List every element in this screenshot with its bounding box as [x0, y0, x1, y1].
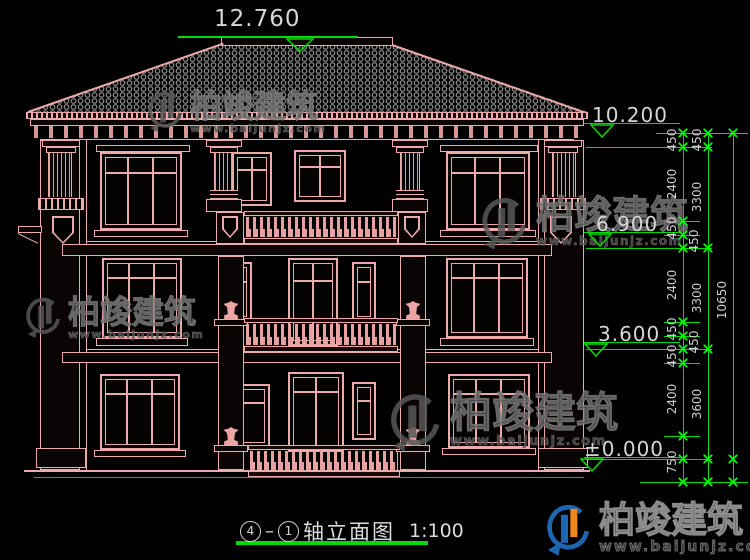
column-shaft-right: [400, 153, 420, 190]
pier-dentil-cap-left: [38, 198, 84, 210]
ground-subline: [34, 477, 584, 478]
wall-edge-left: [86, 140, 87, 470]
column-shield-right: [404, 216, 420, 238]
window-2f-right: [446, 258, 528, 338]
brand-name: 柏竣建筑: [599, 503, 750, 539]
dim-tick: [679, 432, 688, 441]
title-scale: 1:100: [409, 520, 464, 542]
axis-dash: –: [265, 521, 274, 542]
dim-tick: [704, 478, 713, 487]
dim-value-label: 450: [687, 331, 701, 354]
brand-footer: 柏竣建筑 www.baijunjz.com: [544, 503, 750, 557]
dim-tick: [704, 345, 713, 354]
dim-tick: [679, 143, 688, 152]
dim-value-label: 3600: [690, 389, 704, 420]
sill-1f-right: [442, 448, 536, 455]
ridge-elevation-text: 12.760: [214, 6, 300, 32]
dim-value-label: 450: [665, 345, 679, 368]
dim-tick: [704, 244, 713, 253]
door-1f-center: [288, 372, 344, 452]
dim-chain-line: [708, 133, 709, 482]
window-2f-center-right: [352, 262, 376, 322]
elevation-marker-text: ±0.000: [584, 437, 664, 461]
column-capital-right: [392, 140, 428, 147]
brand-url: www.baijunjz.com: [599, 539, 750, 555]
pilaster-cap-right: [544, 140, 582, 147]
pedestal-cap-2f-left: [214, 319, 248, 326]
dim-value-label: 450: [665, 318, 679, 341]
window-3f-center-left: [232, 152, 272, 206]
elevation-marker-text: 6.900: [596, 212, 658, 236]
dim-tick: [729, 129, 738, 138]
dim-value-label: 3300: [690, 182, 704, 213]
elevation-marker-text: 10.200: [592, 103, 668, 127]
window-1f-left: [100, 374, 180, 450]
window-2f-left: [102, 258, 182, 338]
sill-2f-left: [96, 338, 188, 346]
pier-shield-left: [52, 216, 74, 244]
dim-value-label: 450: [690, 129, 704, 152]
left-bracket: [18, 226, 42, 233]
dim-value-label: 10650: [715, 281, 729, 319]
cad-canvas: 柏竣建筑 www.baijunjz.com 柏竣建筑 www.baijunjz.…: [0, 0, 750, 560]
column-pedcap-left: [206, 199, 242, 212]
brand-logo-icon: [544, 503, 592, 557]
sill-1f-left: [94, 450, 186, 457]
win-head-trim-3f-left: [96, 145, 190, 152]
building-elevation: [0, 0, 750, 560]
win-head-trim-3f-right: [440, 145, 538, 152]
title-name: 轴立面图: [303, 516, 395, 546]
dim-tick: [704, 129, 713, 138]
axis-bubble-start: 4: [240, 521, 261, 542]
dim-value-label: 450: [687, 230, 701, 253]
roof-tiles: [28, 44, 588, 112]
slab-3f: [62, 244, 552, 256]
eave-fascia: [30, 119, 584, 126]
eave-underline: [40, 139, 574, 140]
elevation-marker-text: 3.600: [598, 322, 660, 346]
column-shield-left: [222, 216, 238, 238]
eave-brackets: [34, 126, 580, 138]
window-3f-center-right: [294, 150, 346, 202]
balustrade-2f: [244, 318, 398, 352]
dim-tick: [679, 217, 688, 226]
dim-value-label: 2400: [665, 384, 679, 415]
dim-value-label: 2400: [665, 270, 679, 301]
pilaster-shaft-left: [48, 153, 72, 197]
dim-chain-line: [683, 133, 684, 482]
column-rings-right: [396, 190, 424, 199]
sill-2f-right: [440, 338, 534, 346]
window-1f-center-right: [352, 382, 376, 440]
dim-tick: [679, 359, 688, 368]
column-capital-left: [206, 140, 242, 147]
drawing-title: 4 – 1 轴立面图 1:100: [240, 516, 464, 546]
balustrade-1f: [248, 445, 400, 477]
dim-tick: [704, 455, 713, 464]
pilaster-cap-left: [42, 140, 80, 147]
column-shaft-left: [214, 153, 234, 190]
pedestal-cap-1f-right: [396, 445, 430, 452]
sill-3f-left: [94, 230, 188, 237]
dim-value-label: 750: [665, 451, 679, 474]
window-1f-right: [448, 374, 530, 448]
window-3f-right: [446, 152, 530, 230]
eave-tile-ends: [26, 112, 588, 119]
dim-tick: [729, 478, 738, 487]
dim-tick: [704, 143, 713, 152]
column-rings-left: [210, 190, 238, 199]
window-3f-left: [100, 152, 182, 230]
dim-value-label: 450: [665, 217, 679, 240]
dim-tick: [679, 318, 688, 327]
pilaster-shaft-right: [552, 153, 576, 197]
axis-bubble-end: 1: [278, 521, 299, 542]
slab-2f: [62, 352, 552, 363]
dim-tick: [679, 478, 688, 487]
pier-base-left: [36, 448, 86, 468]
dim-tick: [679, 455, 688, 464]
dim-value-label: 2400: [665, 169, 679, 200]
pier-shield-right: [550, 216, 572, 244]
dim-chain-line: [733, 133, 734, 482]
pedestal-cap-2f-right: [396, 319, 430, 326]
ridge-dim-triangle: [286, 38, 314, 52]
pier-dentil-cap-right: [540, 198, 586, 210]
dim-value-label: 450: [665, 129, 679, 152]
dim-tick: [729, 455, 738, 464]
balustrade-3f: [244, 211, 398, 244]
sill-3f-right: [440, 230, 536, 237]
pedestal-cap-1f-left: [214, 445, 248, 452]
left-bracket-strut: [18, 233, 38, 244]
dim-value-label: 3300: [690, 283, 704, 314]
wall-edge-right: [538, 140, 539, 470]
ridge-dim-line: [178, 36, 358, 38]
dim-tick: [679, 129, 688, 138]
